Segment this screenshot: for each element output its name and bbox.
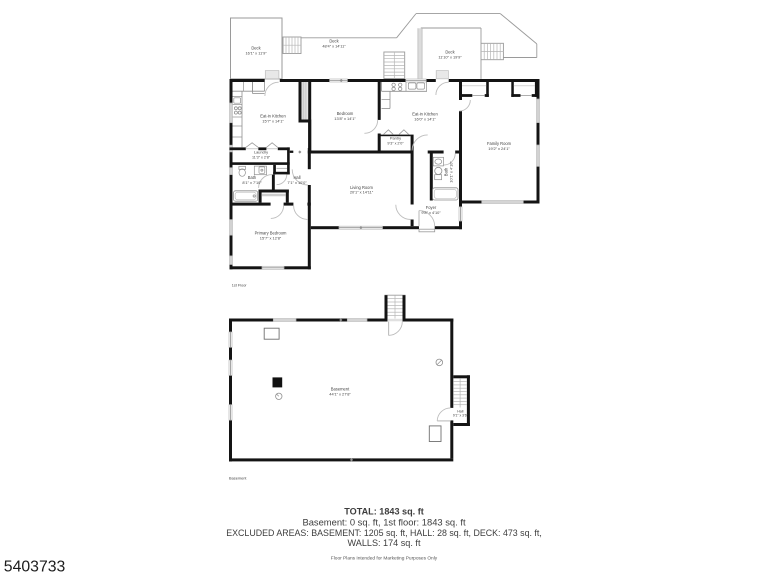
svg-text:1st Floor: 1st Floor [232,283,248,287]
svg-text:48’4” x 14’11”: 48’4” x 14’11” [322,43,346,48]
svg-text:7’1” x 10’0”: 7’1” x 10’0” [287,180,307,185]
svg-text:Pantry: Pantry [390,135,401,140]
svg-text:EXCLUDED AREAS: BASEMENT: 1205: EXCLUDED AREAS: BASEMENT: 1205 sq. ft, H… [226,528,542,538]
svg-text:WALLS: 174 sq. ft: WALLS: 174 sq. ft [348,538,421,548]
svg-text:16’0” x 14’1”: 16’0” x 14’1” [414,117,436,122]
svg-text:9’8” x 4’10”: 9’8” x 4’10” [421,210,441,215]
svg-text:15’7” x 14’1”: 15’7” x 14’1” [262,119,284,124]
svg-text:11’10” x 19’9”: 11’10” x 19’9” [438,55,462,60]
svg-text:Basement: Basement [229,476,247,481]
svg-text:13’8” x 14’1”: 13’8” x 14’1” [334,116,356,121]
svg-text:20’1” x 14’11”: 20’1” x 14’11” [350,190,374,195]
svg-text:Laundry: Laundry [254,150,268,155]
svg-text:16’1” x 11’9”: 16’1” x 11’9” [245,50,267,55]
svg-text:Floor Plans Intended for Marke: Floor Plans Intended for Marketing Purpo… [331,556,438,562]
svg-text:9’1” x 3’6”: 9’1” x 3’6” [453,414,468,418]
svg-text:Basement: 0 sq. ft, 1st floor:: Basement: 0 sq. ft, 1st floor: 1843 sq. … [302,517,466,528]
svg-text:11’3” x 2’8”: 11’3” x 2’8” [252,156,271,160]
svg-text:8’1” x 7’10”: 8’1” x 7’10” [242,180,262,185]
svg-text:19’2” x 24’1”: 19’2” x 24’1” [488,146,510,151]
svg-text:10’1” x 4’10”: 10’1” x 4’10” [448,161,453,183]
svg-text:9’3” x 2’0”: 9’3” x 2’0” [387,141,404,145]
svg-text:5403733: 5403733 [4,558,66,575]
svg-text:15’7” x 12’8”: 15’7” x 12’8” [260,236,282,241]
svg-text:44’1” x 27’8”: 44’1” x 27’8” [329,392,351,397]
svg-text:TOTAL: 1843 sq. ft: TOTAL: 1843 sq. ft [344,507,424,517]
